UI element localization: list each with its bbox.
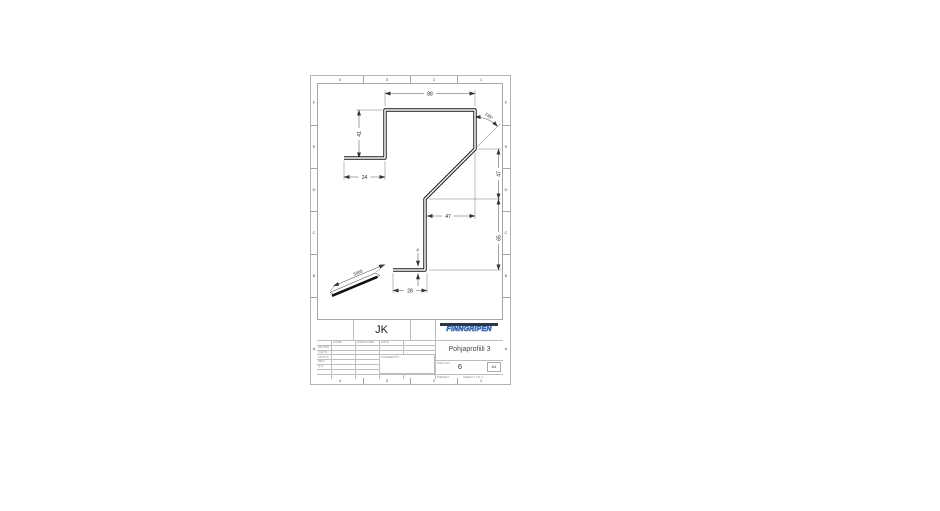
grid-row-qa: Q.A — [318, 365, 323, 368]
dim-diagonal-rise: 47 — [496, 171, 502, 177]
dim-diagonal-run: 47 — [445, 214, 451, 220]
title-block: JK FINNGRIPEN NAME SIGNATURE DATE DRAWN — [317, 319, 503, 378]
dim-bottom-flange-width: 28 — [407, 288, 413, 294]
profile-outline — [344, 110, 475, 270]
comments-cell: COMMENTS: — [379, 354, 435, 374]
dim-top-width: 88 — [427, 91, 433, 97]
logo-text: FINNGRIPEN — [435, 326, 503, 334]
paper-size-badge: A4 — [487, 362, 501, 372]
dim-left-web-height: 41 — [357, 131, 363, 137]
grid-header-name: NAME — [333, 341, 342, 344]
dim-left-flange-width: 24 — [362, 175, 368, 181]
grid-header-date: DATE — [381, 341, 389, 344]
drawing-title: Pohjaprofiili 3 — [435, 340, 503, 360]
weight-label: WEIGHT: — [437, 376, 450, 379]
sheet-label: SHEET 1 OF 1 — [463, 376, 483, 379]
dim-thickness: 4 — [416, 248, 419, 253]
author-initials: JK — [353, 320, 410, 340]
dim-bend-angle: 135° — [484, 111, 494, 121]
company-logo: FINNGRIPEN — [435, 320, 503, 340]
grid-row-appvd: APPV'D — [318, 356, 329, 359]
dim-lower-web-height: 65 — [496, 235, 502, 241]
grid-row-mfg: MFG — [318, 360, 325, 363]
app-canvas: { "sheet": { "zones": { "top": ["4","3",… — [0, 0, 940, 511]
grid-row-chkd: CHK'D — [318, 351, 327, 354]
grid-header-signature: SIGNATURE — [357, 341, 374, 344]
drawing-sheet: 4 3 2 1 4 3 2 1 F E D C B A F E D C B A — [310, 75, 511, 385]
comments-label: COMMENTS: — [381, 356, 399, 359]
grid-row-drawn: DRAWN — [318, 346, 329, 349]
drawing-number: 6 — [435, 360, 485, 374]
